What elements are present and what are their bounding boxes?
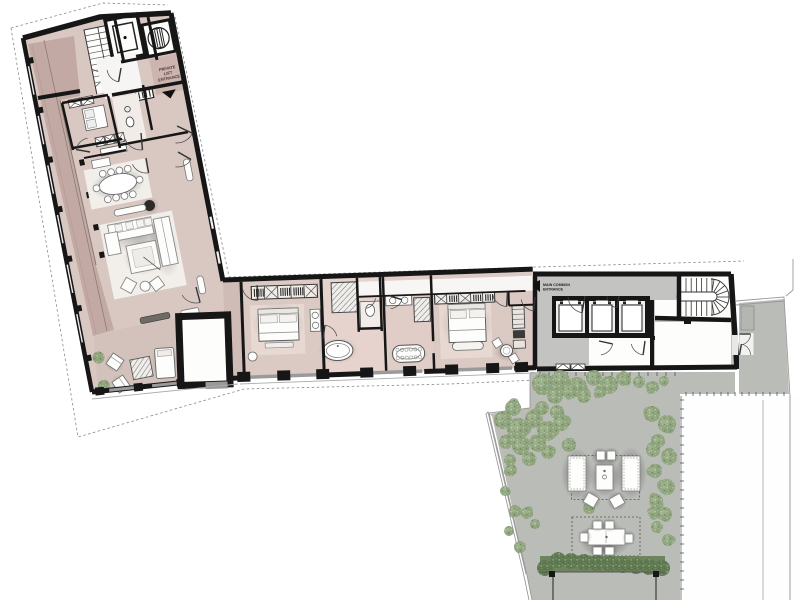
- svg-text:MAIN COMMON: MAIN COMMON: [543, 283, 570, 287]
- svg-text:ENTRANCE: ENTRANCE: [543, 288, 564, 292]
